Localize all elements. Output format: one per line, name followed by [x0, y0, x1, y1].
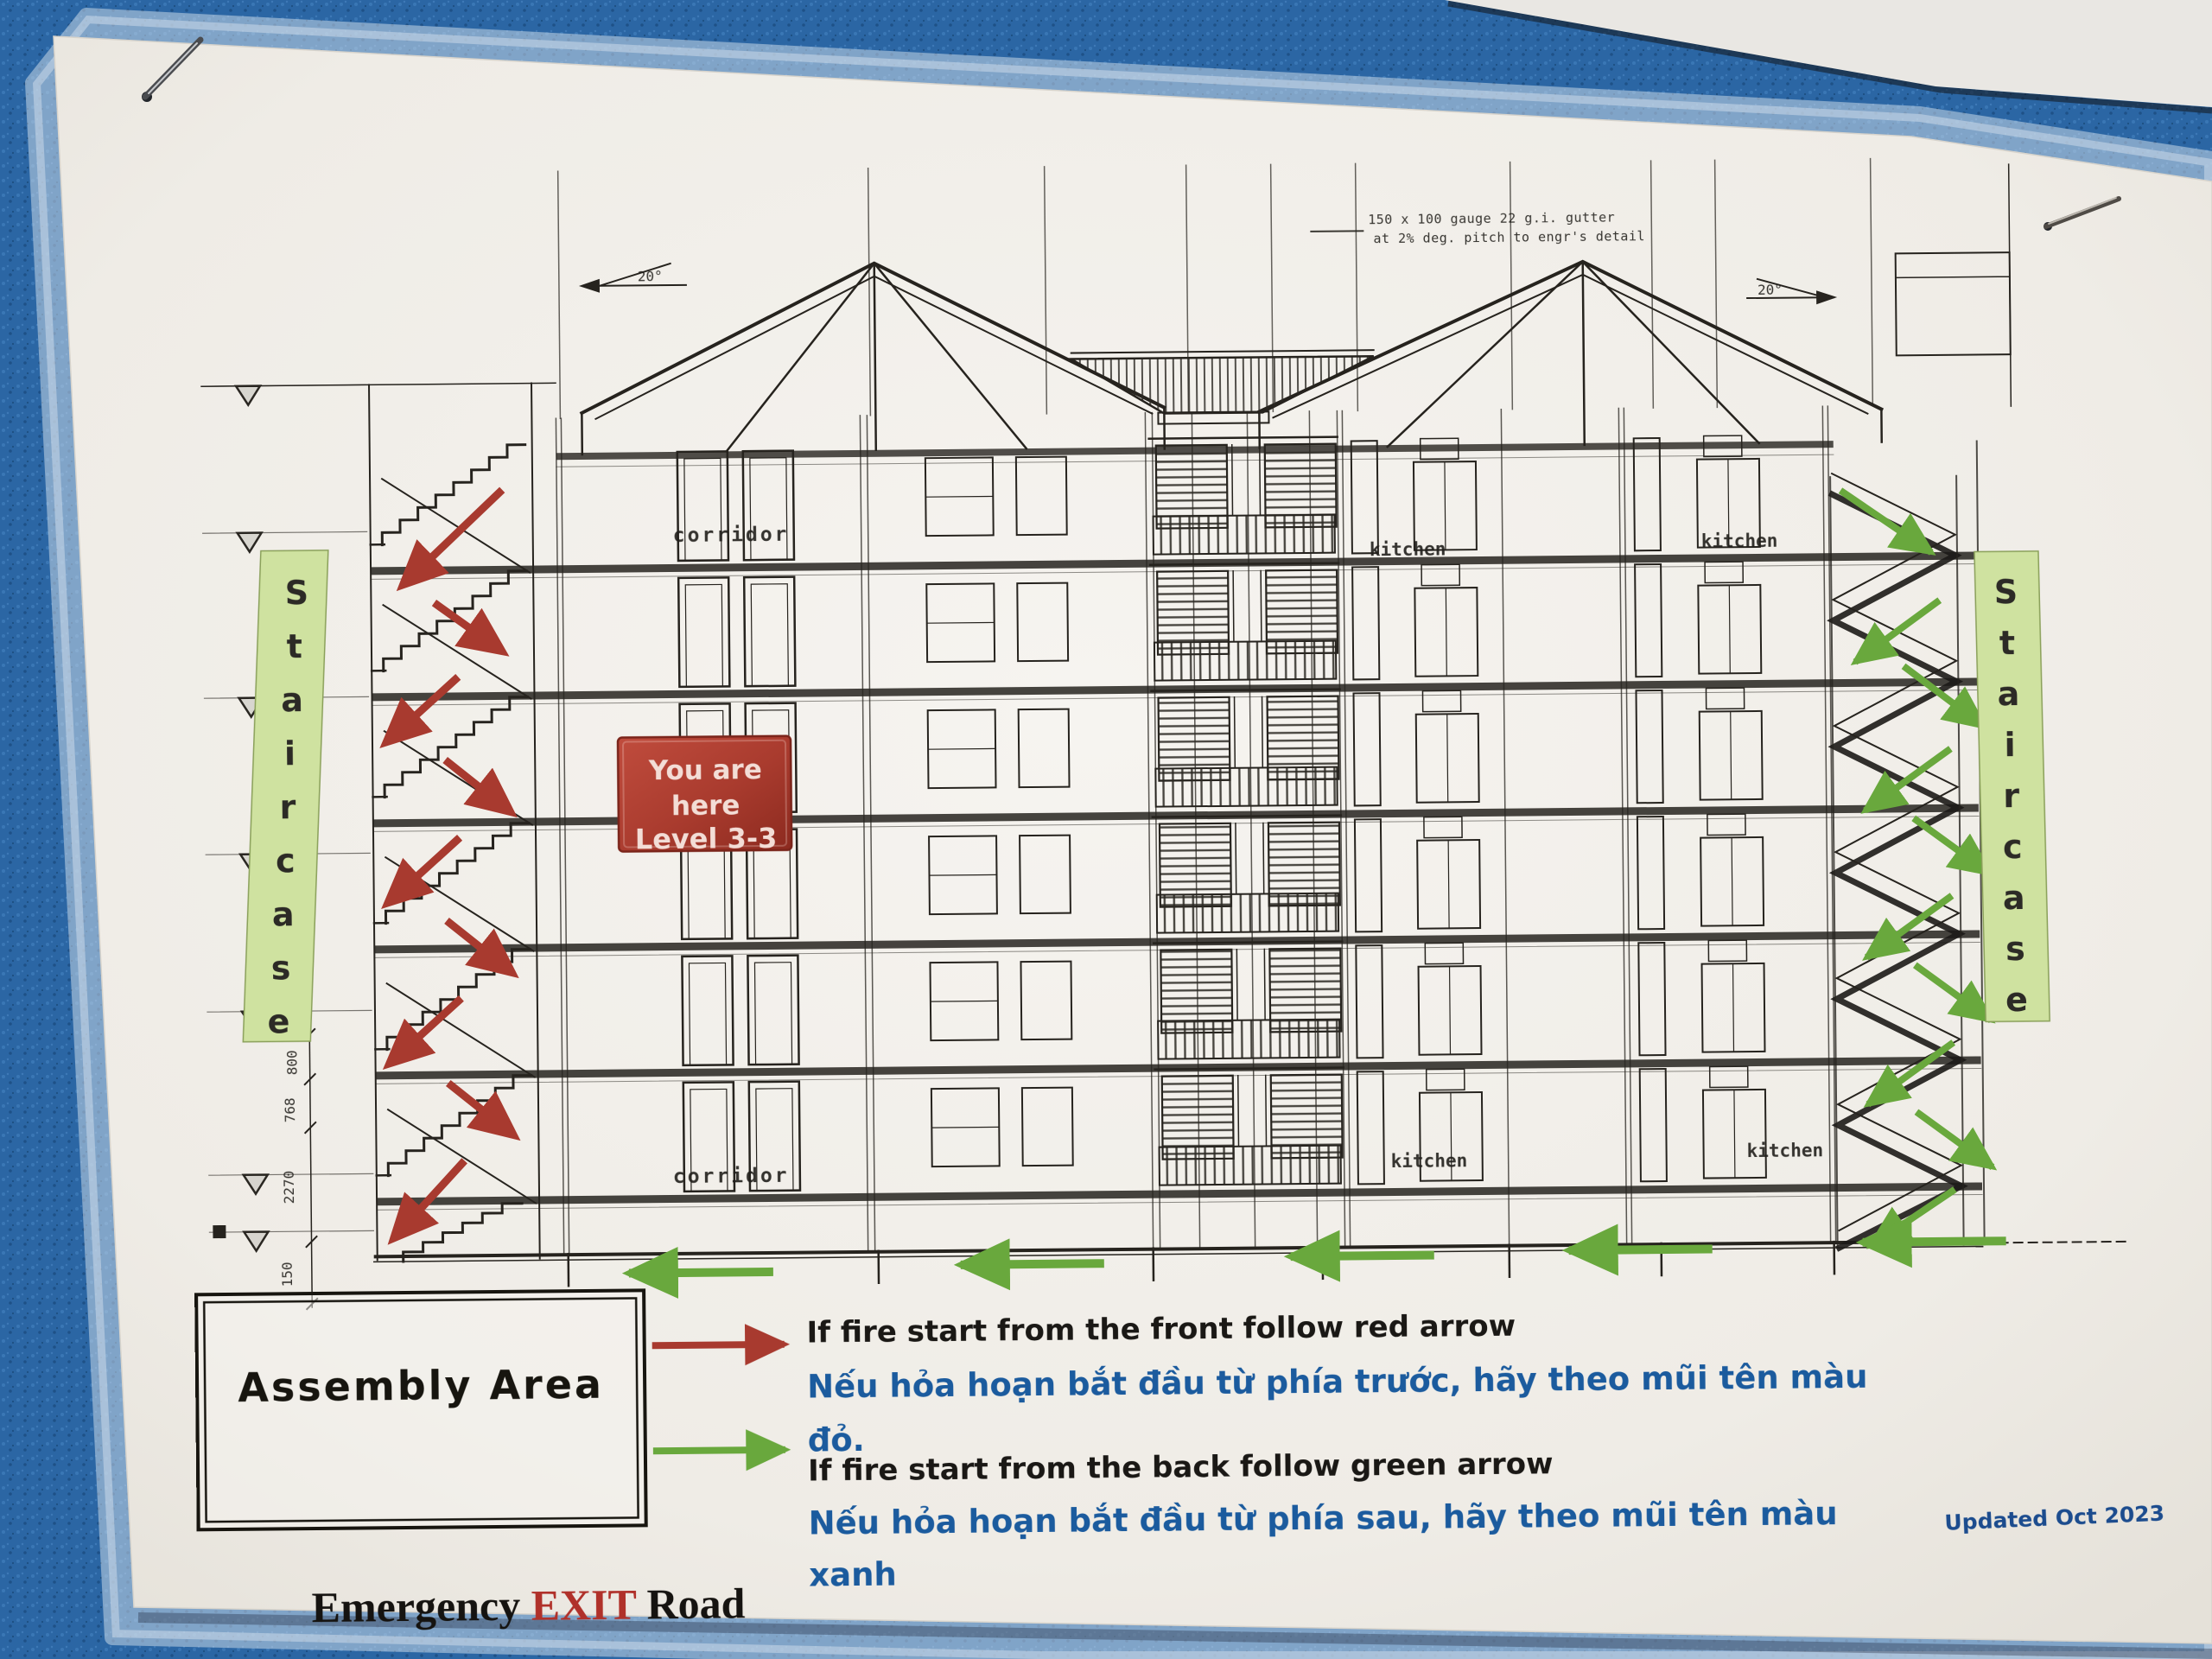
you-are-here-line1: You are [648, 754, 762, 786]
roof-slope-right-label: 20° [1758, 282, 1783, 298]
dimension-150: 150 [279, 1262, 296, 1287]
window-mullion [929, 874, 996, 875]
kitchen-label-bottom-right: kitchen [1746, 1140, 1823, 1161]
door-jamb [1233, 571, 1234, 642]
green-exit-arrow [633, 1272, 769, 1274]
dimension-800: 800 [283, 1050, 300, 1075]
window-mullion [925, 496, 993, 497]
dimension-768: 768 [282, 1097, 298, 1122]
balcony-railing [1158, 1020, 1339, 1059]
balcony-railing [1160, 1146, 1341, 1185]
door-jamb [1261, 570, 1262, 641]
green-exit-arrow [965, 1263, 1100, 1264]
you-are-here-line3: Level 3-3 [635, 822, 778, 856]
kitchen-label-top-left: kitchen [1370, 538, 1446, 560]
window-mullion [931, 1127, 999, 1128]
exit-road-word3: Road [636, 1579, 746, 1628]
exit-road-word1: Emergency [311, 1581, 531, 1631]
kitchen-label-bottom-left: kitchen [1391, 1150, 1468, 1172]
kitchen-label-top-right: kitchen [1701, 531, 1778, 552]
door-jamb [1236, 823, 1236, 894]
door-jamb [1232, 445, 1233, 516]
gutter-note-line1: 150 x 100 gauge 22 g.i. gutter [1368, 210, 1615, 228]
legend-green-en: If fire start from the back follow green… [808, 1446, 1554, 1488]
assembly-area: Assembly Area [196, 1290, 646, 1529]
green-exit-arrow [1867, 1241, 2002, 1242]
assembly-area-label: Assembly Area [238, 1361, 604, 1411]
you-are-here-badge: You are here Level 3-3 [618, 736, 791, 856]
door-jamb [1235, 697, 1236, 768]
corridor-label-top: corridor [673, 524, 790, 547]
green-exit-arrow [1295, 1255, 1430, 1256]
balcony-railing [1154, 641, 1336, 681]
green-exit-arrow [1573, 1249, 1708, 1250]
legend-green-vi-line2: xanh [809, 1556, 897, 1594]
exit-road-word2: EXIT [531, 1580, 636, 1629]
door-jamb [1264, 949, 1265, 1020]
door-jamb [1263, 823, 1264, 893]
gutter-note-line2: at 2% deg. pitch to engr's detail [1373, 228, 1645, 246]
window-mullion [927, 622, 995, 623]
photo-of-evacuation-diagram: { "diagram": { "gutter_note": { "line1":… [0, 0, 2212, 1659]
corridor-label-bottom: corridor [673, 1165, 790, 1188]
roof-slope-left-label: 20° [638, 268, 663, 284]
dimension-2270: 2270 [281, 1171, 297, 1205]
balcony-railing [1154, 515, 1335, 555]
photo-canvas: 150 x 100 gauge 22 g.i. gutter at 2% deg… [0, 0, 2212, 1659]
legend-red-arrow [656, 1344, 781, 1345]
legend-green-arrow [657, 1450, 782, 1451]
door-jamb [1260, 444, 1261, 515]
emergency-exit-road-label: Emergency EXIT Road [311, 1579, 746, 1631]
legend-red-en: If fire start from the front follow red … [806, 1309, 1516, 1351]
door-jamb [1262, 696, 1263, 767]
door-jamb [1238, 1076, 1239, 1147]
you-are-here-line2: here [671, 790, 741, 822]
balcony-railing [1157, 893, 1338, 933]
door-jamb [1266, 1075, 1267, 1146]
window-mullion [931, 1001, 998, 1001]
window-mullion [928, 748, 995, 749]
door-jamb [1236, 950, 1237, 1020]
balcony-railing [1155, 767, 1337, 807]
